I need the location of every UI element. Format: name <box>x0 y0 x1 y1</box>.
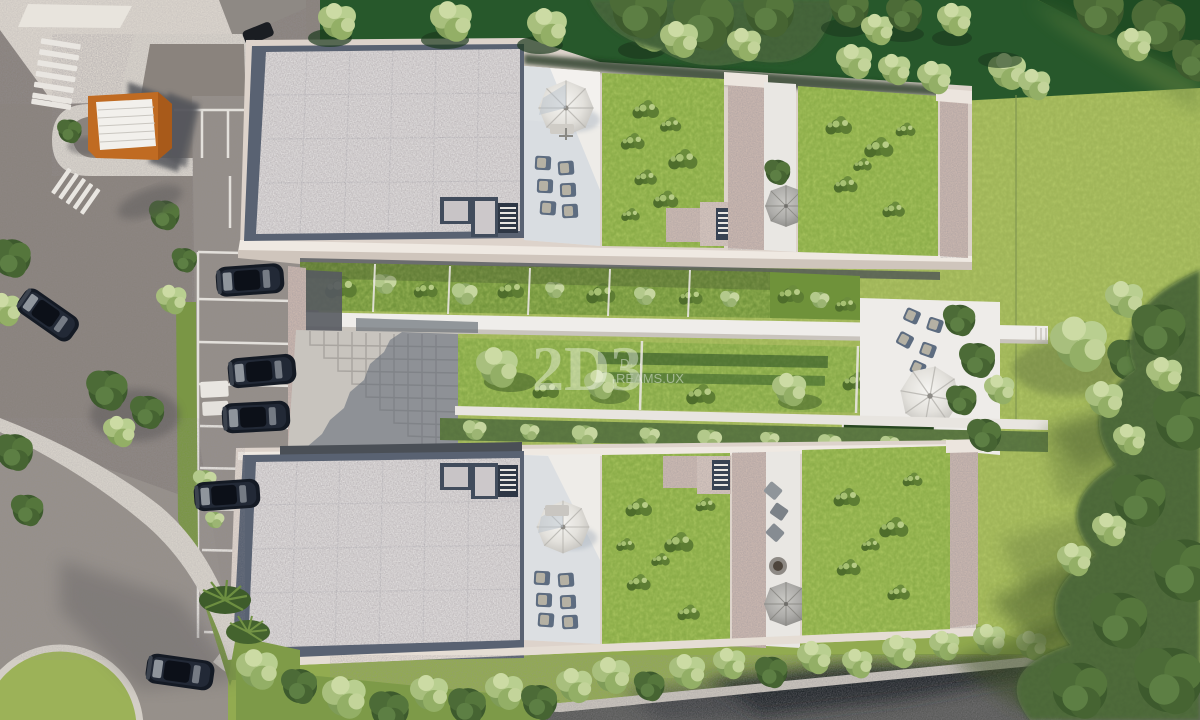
svg-text:D···: D··· <box>620 356 642 371</box>
svg-text:REAMS.UX: REAMS.UX <box>616 371 684 386</box>
